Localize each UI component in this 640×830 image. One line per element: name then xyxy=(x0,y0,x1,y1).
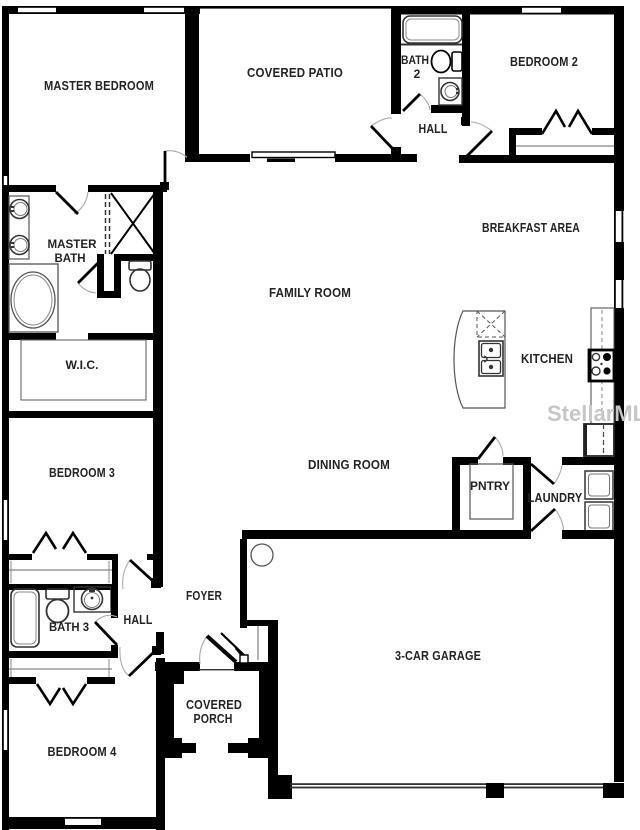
svg-text:PNTRY: PNTRY xyxy=(470,479,510,493)
svg-text:BREAKFAST AREA: BREAKFAST AREA xyxy=(482,220,580,235)
svg-text:2: 2 xyxy=(414,67,421,81)
svg-text:HALL: HALL xyxy=(124,612,153,627)
svg-text:BEDROOM 2: BEDROOM 2 xyxy=(510,54,578,69)
svg-text:BATH: BATH xyxy=(55,251,86,265)
svg-text:DINING ROOM: DINING ROOM xyxy=(308,457,390,472)
svg-text:LAUNDRY: LAUNDRY xyxy=(528,490,583,505)
svg-text:FOYER: FOYER xyxy=(186,588,222,603)
svg-text:BATH: BATH xyxy=(401,53,429,67)
svg-text:MASTER: MASTER xyxy=(48,237,97,251)
svg-text:StellarMLS: StellarMLS xyxy=(547,401,640,426)
svg-text:BATH 3: BATH 3 xyxy=(49,620,89,634)
svg-text:FAMILY ROOM: FAMILY ROOM xyxy=(269,285,351,300)
svg-text:MASTER BEDROOM: MASTER BEDROOM xyxy=(44,78,154,93)
svg-text:3-CAR GARAGE: 3-CAR GARAGE xyxy=(395,648,481,663)
svg-text:COVERED PATIO: COVERED PATIO xyxy=(247,65,343,80)
svg-text:HALL: HALL xyxy=(419,121,448,136)
svg-text:W.I.C.: W.I.C. xyxy=(66,358,99,372)
svg-text:PORCH: PORCH xyxy=(194,711,233,726)
svg-text:BEDROOM 4: BEDROOM 4 xyxy=(48,744,117,759)
svg-text:BEDROOM 3: BEDROOM 3 xyxy=(49,465,115,480)
svg-text:COVERED: COVERED xyxy=(186,697,242,712)
svg-text:KITCHEN: KITCHEN xyxy=(521,351,573,366)
